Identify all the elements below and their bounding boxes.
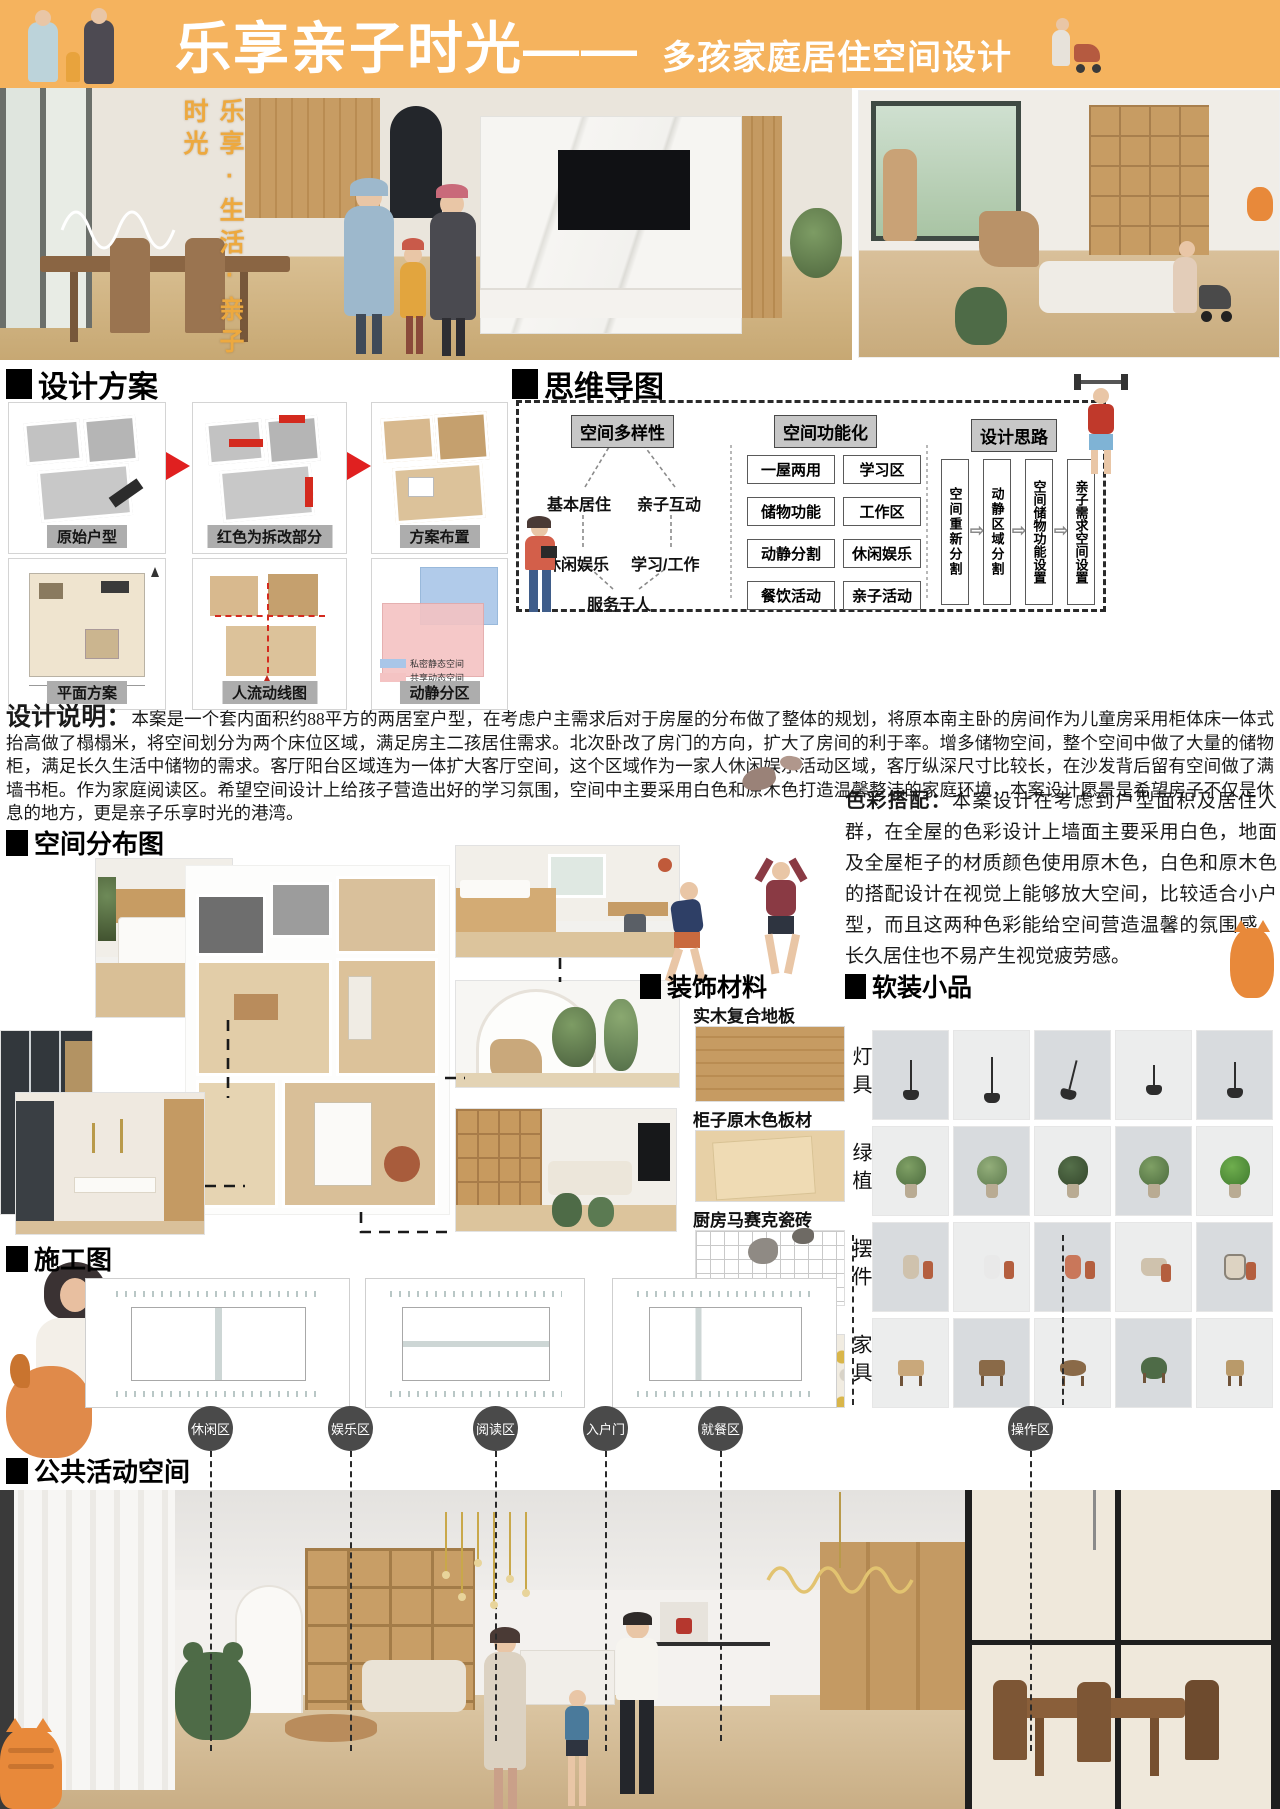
color-note-body: 本案设计在考虑到户型面积及居住人群，在全屋的色彩设计上墙面主要采用白色，地面及全… (845, 791, 1277, 967)
dad-pants (620, 1700, 635, 1794)
ornament-image (1034, 1222, 1111, 1312)
figure-head (1093, 388, 1109, 404)
grandma-scarf (436, 184, 468, 198)
zone-badge-entry: 入户门 (583, 1406, 628, 1451)
functional-item: 亲子活动 (843, 581, 921, 610)
plan-card-floorplan: 平面方案 (8, 558, 166, 710)
stroller-wheel (1076, 64, 1085, 73)
circulation-line-red (215, 615, 325, 617)
mind-map-box: 空间多样性 空间功能化 设计思路 基本居住 亲子互动 休闲娱乐 学习/工作 服务… (516, 400, 1106, 612)
dimension-ticks (637, 1291, 814, 1297)
section-title: 装饰材料 (667, 968, 767, 1004)
mom-figure (476, 1632, 532, 1809)
ring-lamp-icon (1153, 1065, 1155, 1085)
soft-row-label-furniture: 家具 (846, 1334, 875, 1390)
section-title: 空间分布图 (34, 824, 164, 861)
cat-ear (6, 1718, 24, 1732)
child-legs (568, 1756, 575, 1806)
barbell-plate (1121, 374, 1128, 390)
plan-room (223, 623, 319, 679)
cat-stripe (8, 1764, 54, 1769)
cat-icon (1247, 187, 1273, 221)
legend-label-static: 私密静态空间 (410, 657, 464, 670)
rocking-chair (979, 211, 1039, 267)
functional-item: 储物功能 (747, 497, 835, 526)
arrow-right-icon (347, 452, 371, 480)
plan-room (434, 411, 489, 463)
diversity-item: 亲子互动 (637, 491, 701, 515)
dimension-ticks (116, 1391, 321, 1397)
photo-cabinet (164, 1099, 205, 1223)
dining-chair (1185, 1680, 1219, 1760)
zone-badge-dining: 就餐区 (698, 1406, 743, 1451)
dining-table-leg (1150, 1718, 1159, 1776)
lamp-image (1115, 1030, 1192, 1120)
poster-board: 乐享亲子时光—— 多孩家庭居住空间设计 乐享·生活·亲子时光 (0, 0, 1280, 1809)
diversity-item: 服务于人 (587, 591, 651, 615)
kid2-legs (784, 934, 800, 975)
kid2-arm (755, 858, 774, 883)
soft-row-label-plants: 绿植 (846, 1142, 875, 1198)
family-illustration-center (328, 184, 478, 360)
plan-furniture (85, 629, 119, 659)
diversity-item: 基本居住 (547, 491, 611, 515)
bar-stool-icon (1226, 1360, 1244, 1376)
child-legs (579, 1756, 586, 1806)
color-note-label: 色彩搭配： (845, 790, 952, 812)
section-title: 施工图 (34, 1240, 112, 1277)
glass-mullion (1115, 1490, 1121, 1809)
photo-floor (16, 1221, 205, 1235)
plan-room (392, 462, 486, 524)
functional-item: 休闲娱乐 (843, 539, 921, 568)
sofa-left (362, 1660, 466, 1712)
dining-living-render: 乐享·生活·亲子时光 (0, 88, 852, 360)
tablet-icon (541, 546, 557, 558)
potted-plant-icon (1139, 1156, 1169, 1186)
header-bar: 乐享亲子时光—— 多孩家庭居住空间设计 (0, 0, 1280, 88)
plan-card-demolition: 红色为拆改部分 (192, 402, 347, 554)
zone-leader-line (210, 1451, 212, 1751)
cad-plan-outline (649, 1307, 802, 1381)
bird-icon (748, 1238, 778, 1264)
soft-grid-row-plants (872, 1126, 1280, 1218)
figure-body (1173, 257, 1197, 313)
guitar-person-illustration (883, 149, 917, 241)
section-marker (6, 830, 28, 856)
furniture-image (1196, 1318, 1273, 1408)
green-bear-chair (955, 287, 1007, 345)
plan-card-layout: 方案布置 (371, 402, 508, 554)
figure-head (35, 10, 51, 26)
plan-furniture (39, 583, 63, 599)
functional-item: 一屋两用 (747, 455, 835, 484)
floor-lamp-icon (1068, 1060, 1077, 1090)
cad-drawing-2 (365, 1278, 585, 1408)
plan-room (207, 573, 261, 619)
public-space-render (0, 1490, 1280, 1809)
cad-drawing-3 (612, 1278, 837, 1408)
child-head (569, 1690, 586, 1707)
photo-pendant (92, 1123, 95, 1153)
functional-item: 工作区 (843, 497, 921, 526)
soft-grid-row-ornaments (872, 1222, 1280, 1314)
plan-label: 动静分区 (399, 681, 479, 704)
wavy-lamp-icon (1234, 1062, 1236, 1088)
legend-swatch-blue (380, 659, 406, 668)
glass-mullion-horizontal (965, 1640, 1280, 1645)
mom-hood (350, 178, 388, 196)
photo-table (74, 1177, 156, 1193)
approach-step: 亲子需求空间设置 (1067, 459, 1095, 605)
furniture-image (1034, 1318, 1111, 1408)
kettle-icon (676, 1618, 692, 1634)
mom-stroller-illustration (1169, 241, 1239, 351)
section-marker (6, 1458, 28, 1484)
plan-label: 方案布置 (399, 525, 479, 548)
plan-kitchen (196, 894, 266, 956)
section-title: 思维导图 (544, 362, 664, 406)
plan-sofa (348, 976, 372, 1040)
window-frame (0, 88, 92, 328)
rocking-chair-icon (898, 1360, 924, 1376)
node-space-functional: 空间功能化 (774, 415, 877, 448)
dining-chair (1077, 1682, 1111, 1762)
ball-icon (658, 858, 672, 872)
kid2-head (772, 862, 790, 880)
mom-legs (508, 1768, 517, 1809)
soft-grid-row-lamps (872, 1030, 1280, 1122)
section-marker (512, 369, 538, 399)
plant-image (1196, 1126, 1273, 1216)
circulation-line-red (267, 583, 269, 673)
family-illustration-left (22, 8, 142, 86)
child-hat (402, 238, 424, 250)
photo-pendant (120, 1119, 123, 1153)
figure-legs (1091, 450, 1098, 474)
dimension-ticks (637, 1391, 814, 1397)
figure-legs (1104, 450, 1111, 474)
child-legs (416, 316, 423, 354)
stroller-icon (1199, 285, 1231, 309)
table-leg (70, 272, 78, 342)
section-title: 公共活动空间 (34, 1452, 190, 1489)
barbell-plate (1074, 374, 1081, 390)
plan-dining-table (234, 994, 278, 1020)
lamp-image (1034, 1030, 1111, 1120)
functional-item: 学习区 (843, 455, 921, 484)
cat-illustration (0, 1728, 62, 1809)
section-title: 设计方案 (38, 362, 158, 406)
green-bear-chair (175, 1652, 251, 1740)
demolished-wall-red (305, 477, 313, 507)
section-soft-furnishing: 软装小品 (845, 968, 972, 1004)
render-glass-partition (965, 1490, 1280, 1809)
plan-room (83, 415, 139, 465)
figure-child (66, 52, 80, 82)
plan-study (336, 876, 438, 954)
section-design-scheme: 设计方案 (6, 362, 158, 406)
glass-mullion (1271, 1490, 1280, 1809)
potted-plant-icon (896, 1156, 926, 1186)
plan-balcony (196, 1080, 278, 1208)
ornament-image (953, 1222, 1030, 1312)
plan-card-zoning: 私密静态空间 共享动态空间 动静分区 (371, 558, 508, 710)
material-swatch-board (695, 1130, 845, 1202)
material-label-board: 柜子原木色板材 (693, 1106, 812, 1131)
balcony-reading-render (858, 90, 1280, 358)
plant-image (872, 1126, 949, 1216)
bookshelf-wall (1089, 105, 1209, 255)
approach-step: 动静区域分割 (983, 459, 1011, 605)
radio-icon (1141, 1258, 1167, 1276)
plan-rug (384, 1146, 420, 1182)
figure-head (91, 8, 107, 24)
cad-plan-outline (131, 1307, 306, 1381)
lamp-image (953, 1030, 1030, 1120)
child-legs (406, 316, 413, 354)
child-figure (560, 1690, 594, 1809)
bird-icon (792, 1228, 814, 1244)
figure-legs (542, 570, 551, 612)
cat-icon (1230, 928, 1274, 998)
vase-icon (903, 1255, 919, 1279)
render-kitchen-cabinets (820, 1542, 965, 1710)
child-shorts (566, 1740, 588, 1756)
zone-badge-leisure: 休闲区 (188, 1406, 233, 1451)
section-materials: 装饰材料 (640, 968, 767, 1004)
furniture-image (1115, 1318, 1192, 1408)
plant-image (1115, 1126, 1192, 1216)
lamp-image (872, 1030, 949, 1120)
dimension-ticks (390, 1291, 562, 1297)
photo-plant (552, 1007, 596, 1067)
soft-grid-row-furniture (872, 1318, 1280, 1410)
zone-leader-line (1030, 1451, 1032, 1751)
cat-ear (34, 1718, 52, 1732)
poster-subtitle: 多孩家庭居住空间设计 (662, 30, 1012, 79)
cad-plan-outline (402, 1307, 550, 1381)
photo-floor (456, 1073, 680, 1088)
sculpture-icon (1065, 1255, 1081, 1279)
zone-leader-line (605, 1451, 607, 1751)
pendant-lamp-icon (910, 1060, 912, 1090)
plan-label: 原始户型 (47, 525, 127, 548)
plan-bathroom (270, 882, 332, 938)
potted-plant-icon (1220, 1156, 1250, 1186)
photo-green-bear (552, 1193, 582, 1227)
zone-badge-reading: 阅读区 (473, 1406, 518, 1451)
plant-icon (790, 208, 842, 278)
figure-legs (529, 570, 538, 612)
living-room-photo (455, 1108, 677, 1232)
hero-renders: 乐享·生活·亲子时光 (0, 88, 1280, 360)
soft-row-label-ornaments: 摆件 (846, 1238, 875, 1294)
photo-green-bear (588, 1197, 614, 1227)
zone-leader-line (495, 1451, 497, 1741)
pendant-lamp (1093, 1490, 1096, 1550)
color-note: 色彩搭配：本案设计在考虑到户型面积及居住人群，在全屋的色彩设计上墙面主要采用白色… (845, 786, 1277, 972)
node-space-diversity: 空间多样性 (571, 415, 674, 448)
section-marker (640, 974, 661, 999)
boy-shirt (670, 898, 704, 936)
ornament-image (872, 1222, 949, 1312)
stroller-icon (1074, 44, 1100, 62)
plan-room (265, 571, 321, 619)
figure-shorts (1089, 434, 1113, 450)
grandma-coat (430, 212, 476, 320)
pendant-lamp-icon (991, 1057, 993, 1093)
figure-hair (527, 516, 551, 528)
furniture-image (872, 1318, 949, 1408)
stroller-wheel (1201, 311, 1212, 322)
plan-room (381, 415, 436, 463)
plan-bed (408, 477, 434, 497)
grandma-legs (442, 318, 451, 356)
photo-sofa (548, 1161, 632, 1195)
dad-hair (623, 1612, 652, 1625)
zone-badge-operation: 操作区 (1008, 1406, 1053, 1451)
section-construction: 施工图 (6, 1240, 112, 1277)
mom-dress (484, 1652, 526, 1770)
kid2-pants (768, 916, 794, 934)
photo-window (548, 854, 606, 898)
bear-ear (223, 1642, 243, 1662)
bear-stool-icon (1141, 1357, 1167, 1379)
zone-badge-entertainment: 娱乐区 (328, 1406, 373, 1451)
grandma-legs (456, 318, 465, 356)
plan-furniture (101, 581, 129, 593)
photo-plant (604, 999, 638, 1071)
furniture-image (953, 1318, 1030, 1408)
photo-plant (98, 877, 116, 941)
dad-figure (606, 1616, 666, 1809)
functional-item: 餐饮活动 (747, 581, 835, 610)
poster-title: 乐享亲子时光—— (175, 4, 639, 85)
leader-line (1062, 1235, 1064, 1405)
plan-bed (314, 1102, 372, 1186)
material-swatch-floor (695, 1026, 845, 1102)
plan-card-circulation: 人流动线图 (192, 558, 347, 710)
diversity-item: 学习/工作 (631, 551, 699, 575)
photo-dark-window (16, 1101, 54, 1221)
side-table-icon (979, 1360, 1005, 1376)
astronaut-figurine-icon (984, 1255, 1000, 1279)
north-arrow-icon (151, 567, 159, 577)
floor-plan-top-view (185, 865, 450, 1215)
dumbbell-man-illustration (1072, 372, 1132, 476)
dimension-ticks (116, 1291, 321, 1297)
zone-leader-line (350, 1451, 352, 1751)
material-label-mosaic: 厨房马赛克瓷砖 (693, 1206, 812, 1231)
figure-head (1179, 241, 1195, 257)
dad-shirt (616, 1638, 658, 1700)
coffee-table (285, 1714, 377, 1742)
cad-drawing-1 (85, 1278, 350, 1408)
cat-ear (1256, 920, 1270, 932)
lamp-image (1196, 1030, 1273, 1120)
plan-card-original: 原始户型 (8, 402, 166, 554)
vertical-slogan: 乐享·生活·亲子时光 (176, 98, 248, 360)
approach-step: 空间重新分割 (941, 459, 969, 605)
design-note-label: 设计说明： (6, 704, 131, 731)
dining-table-leg (1035, 1718, 1044, 1776)
plan-label: 人流动线图 (222, 681, 317, 704)
section-marker (6, 369, 32, 399)
approach-step: 空间储物功能设置 (1025, 459, 1053, 605)
boy-head (680, 882, 698, 900)
kid2-arm (789, 858, 808, 883)
photo-shelf-wall (456, 1109, 542, 1205)
stroller-wheel (1221, 311, 1232, 322)
demolished-wall-red (229, 439, 263, 447)
glass-mullion (965, 1490, 972, 1809)
figure-adult-1 (28, 22, 58, 82)
child-shirt (565, 1706, 589, 1740)
section-public-space: 公共活动空间 (6, 1452, 190, 1489)
section-marker (845, 974, 866, 999)
wall-art-icon (1224, 1254, 1246, 1280)
boy-shorts (674, 932, 700, 948)
soft-row-label-lamps: 灯具 (846, 1046, 875, 1102)
cat-stripe (8, 1748, 54, 1753)
ornament-image (1196, 1222, 1273, 1312)
figure-adult-2 (84, 20, 114, 84)
zone-leader-line (720, 1451, 722, 1741)
section-title: 软装小品 (872, 968, 972, 1004)
potted-plant-icon (977, 1156, 1007, 1186)
plan-label: 红色为拆改部分 (207, 525, 332, 548)
functional-item: 动静分割 (747, 539, 835, 568)
reading-woman-illustration (517, 520, 565, 614)
cat-ear (1234, 920, 1248, 932)
stroller-illustration-right (1048, 18, 1108, 82)
dimension-ticks (390, 1391, 562, 1397)
potted-plant-icon (1058, 1156, 1088, 1186)
dining-chair (993, 1680, 1027, 1760)
plan-label: 平面方案 (47, 681, 127, 704)
section-mind-map: 思维导图 (512, 362, 664, 406)
wood-column (742, 116, 782, 318)
tv-screen (558, 150, 690, 230)
dog-ear (10, 1354, 30, 1388)
section-space-distribution: 空间分布图 (6, 824, 164, 861)
mom-legs (494, 1768, 503, 1809)
dining-table (40, 256, 290, 272)
leader-line (852, 1235, 854, 1405)
dining-hall-photo (15, 1092, 205, 1235)
plan-room (219, 463, 315, 523)
tv-cabinet (480, 288, 780, 318)
bear-ear (183, 1642, 203, 1662)
kid2-shirt (766, 880, 796, 916)
material-label-floor: 实木复合地板 (693, 1002, 795, 1027)
plant-image (953, 1126, 1030, 1216)
section-marker (6, 1246, 28, 1272)
mom-coat (344, 206, 394, 316)
dining-chair (110, 238, 150, 333)
figure-body (1052, 30, 1070, 66)
dad-pants (639, 1700, 654, 1794)
ornament-image (1115, 1222, 1192, 1312)
sofa-white (1039, 261, 1189, 313)
mom-legs (356, 314, 366, 354)
stroller-wheel (1092, 64, 1101, 73)
mom-legs (372, 314, 382, 354)
barbell-icon (1076, 380, 1126, 384)
demolished-wall-red (279, 415, 305, 423)
arrow-right-icon (166, 452, 190, 480)
